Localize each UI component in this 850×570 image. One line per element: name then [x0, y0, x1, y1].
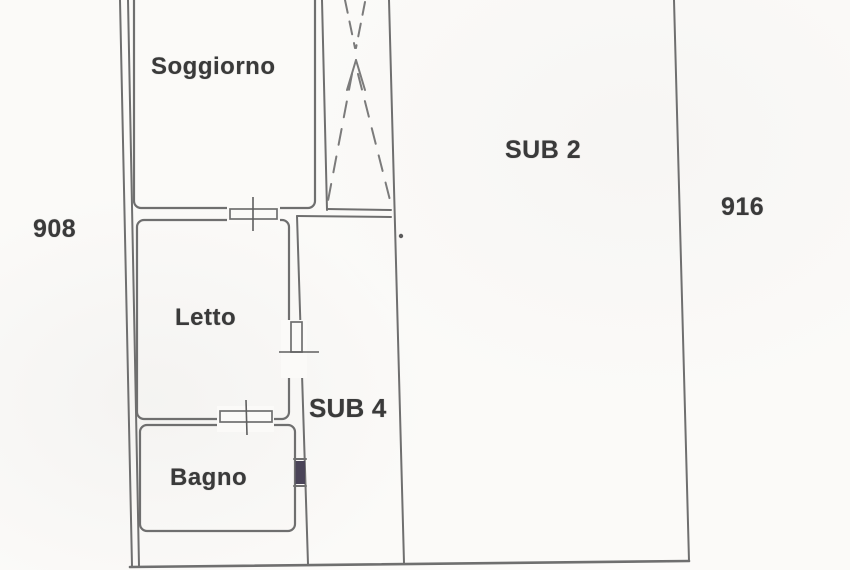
room-label-soggiorno: Soggiorno	[151, 55, 275, 79]
partition-sub2-left-wall	[389, 0, 404, 563]
stair-dash-line	[345, 0, 355, 48]
window-bagno	[294, 459, 306, 486]
room-label-letto: Letto	[175, 306, 236, 330]
unit-label-sub4: SUB 4	[309, 395, 387, 421]
opening-letto-sub4	[281, 320, 307, 378]
stairwell-left-wall	[322, 0, 327, 210]
stair-dash-line	[358, 74, 392, 208]
room-label-bagno: Bagno	[170, 466, 247, 490]
corridor-left-wall	[297, 216, 308, 564]
outer-wall-bottom	[130, 561, 689, 567]
outer-wall-right	[674, 0, 689, 561]
unit-label-sub2: SUB 2	[505, 138, 581, 163]
room-soggiorno-outline	[134, 0, 315, 208]
parcel-number-916: 916	[721, 195, 764, 220]
window-glass	[296, 461, 306, 484]
corridor-top-wall	[297, 216, 391, 217]
door-tick	[246, 400, 247, 435]
stair-dashes	[327, 0, 392, 208]
floor-plan-scan: Soggiorno SUB 2 916 908 Letto SUB 4 Bagn…	[0, 0, 850, 570]
stairwell-bottom-wall	[327, 209, 391, 210]
stair-dash-line	[356, 2, 365, 48]
parcel-number-908: 908	[33, 217, 76, 242]
stair-dash-line	[327, 74, 352, 206]
scan-speck	[399, 234, 403, 238]
floor-plan-drawing	[0, 0, 850, 570]
